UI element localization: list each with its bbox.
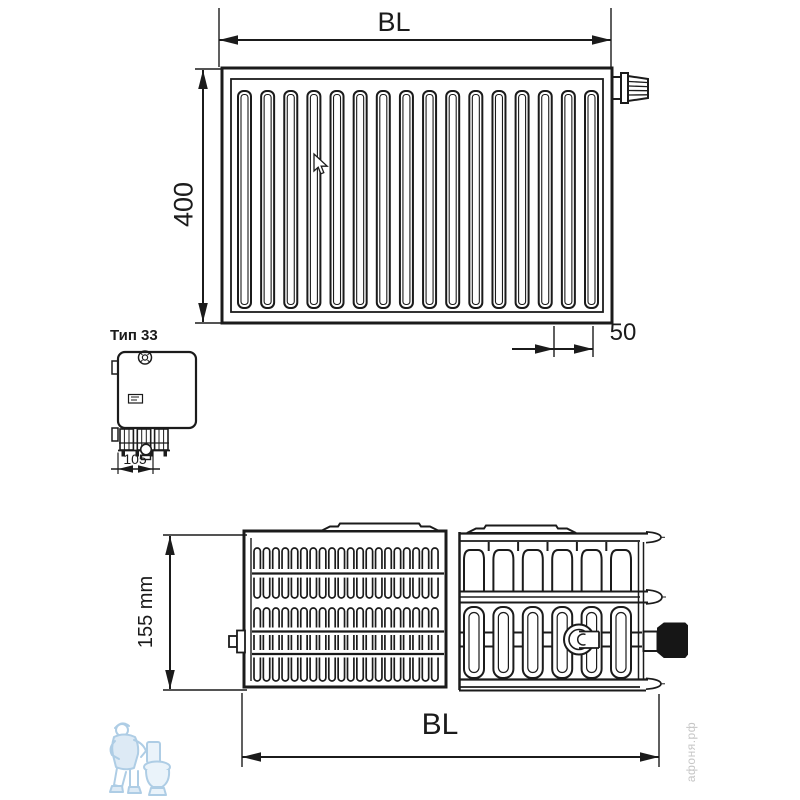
plumber-logo	[110, 723, 170, 795]
lower-fin-row	[464, 607, 631, 678]
dim-label-depth-155mm: 155 mm	[136, 547, 156, 677]
type-33-title: Тип 33	[110, 328, 158, 343]
mounting-bracket	[321, 524, 439, 532]
top-view-left-half	[229, 524, 446, 688]
label-sticker	[129, 395, 143, 404]
front-view-radiator	[222, 68, 648, 323]
side-body	[118, 352, 196, 428]
radiator-channels	[238, 91, 598, 308]
wall-bracket-tab	[112, 428, 118, 441]
top-view-right-half	[459, 526, 688, 691]
mounting-bracket	[467, 526, 576, 534]
dim-label-depth-105: 105	[109, 452, 161, 466]
right-pipe-connection-icon	[644, 623, 688, 658]
dim-label-height-400: 400	[171, 165, 198, 245]
dim-label-pipe-spacing-50: 50	[598, 321, 648, 345]
radiator-technical-drawing: BL 400 50 Тип 33 105 155 mm BL афоня.рф	[0, 0, 800, 800]
left-pipe-connection-icon	[229, 636, 237, 647]
top-view-dimension-155	[163, 535, 247, 690]
valve-connection-icon	[612, 73, 648, 103]
convector-grille	[254, 548, 438, 681]
dim-label-bl-bottom: BL	[400, 710, 480, 740]
radiator-outer-frame	[222, 68, 612, 323]
upper-fin-row	[464, 542, 631, 591]
drawing-canvas	[0, 0, 800, 800]
dim-label-bl-top: BL	[354, 9, 434, 36]
watermark-site-text: афоня.рф	[685, 682, 697, 800]
